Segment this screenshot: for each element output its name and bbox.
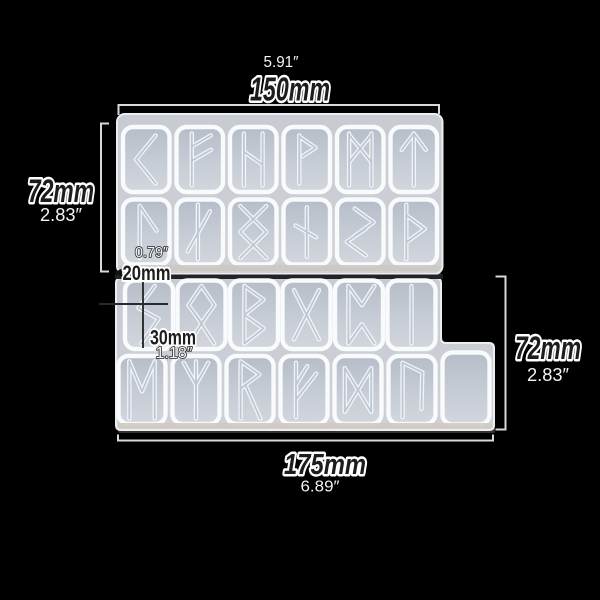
- svg-text:2.83″: 2.83″: [40, 205, 83, 225]
- svg-text:72mm: 72mm: [28, 173, 94, 209]
- svg-text:1.18″: 1.18″: [156, 345, 194, 362]
- svg-text:175mm: 175mm: [284, 449, 366, 481]
- svg-text:72mm: 72mm: [515, 330, 581, 366]
- svg-text:20mm: 20mm: [123, 262, 171, 285]
- svg-text:0.79″: 0.79″: [135, 245, 168, 261]
- svg-text:150mm: 150mm: [250, 71, 330, 108]
- svg-text:5.91″: 5.91″: [264, 54, 300, 71]
- svg-text:6.89″: 6.89″: [301, 479, 340, 496]
- svg-text:2.83″: 2.83″: [527, 365, 570, 385]
